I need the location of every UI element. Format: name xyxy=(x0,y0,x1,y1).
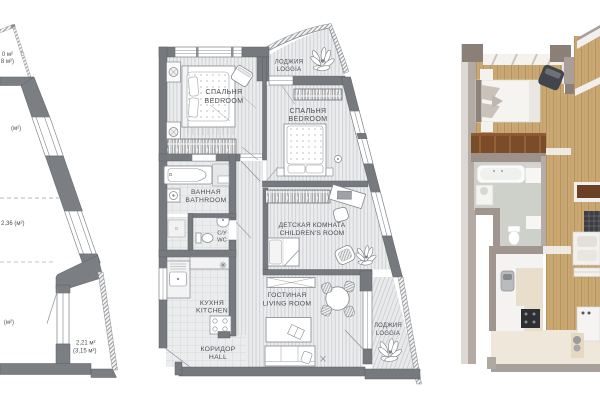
svg-text:(м²): (м²) xyxy=(4,320,14,326)
svg-text:LIVING ROOM: LIVING ROOM xyxy=(263,301,312,308)
svg-text:HALL: HALL xyxy=(209,354,227,361)
svg-text:2,36 (м²): 2,36 (м²) xyxy=(1,221,24,227)
svg-text:CHILDREN'S ROOM: CHILDREN'S ROOM xyxy=(280,230,345,237)
svg-text:С/У: С/У xyxy=(217,231,227,237)
svg-text:КОРИДОР: КОРИДОР xyxy=(200,346,235,353)
svg-text:СПАЛЬНЯ: СПАЛЬНЯ xyxy=(289,108,326,115)
svg-text:BEDROOM: BEDROOM xyxy=(289,116,328,123)
svg-text:ЛОДЖИЯ: ЛОДЖИЯ xyxy=(275,60,304,66)
svg-text:ГОСТИНАЯ: ГОСТИНАЯ xyxy=(267,292,306,299)
svg-text:(3,15 м²): (3,15 м²) xyxy=(73,349,96,355)
svg-text:ЛОДЖИЯ: ЛОДЖИЯ xyxy=(374,323,402,329)
svg-text:BATHROOM: BATHROOM xyxy=(185,197,226,204)
svg-text:ВАННАЯ: ВАННАЯ xyxy=(191,189,221,196)
svg-text:2,21 м²: 2,21 м² xyxy=(76,341,95,347)
svg-text:ДЕТСКАЯ КОМНАТА: ДЕТСКАЯ КОМНАТА xyxy=(279,222,346,229)
svg-text:LOGGIA: LOGGIA xyxy=(277,67,302,73)
svg-text:BEDROOM: BEDROOM xyxy=(205,98,244,105)
svg-text:0 м²: 0 м² xyxy=(2,52,13,58)
svg-text:LOGGIA: LOGGIA xyxy=(376,331,400,337)
svg-text:8 м²): 8 м²) xyxy=(1,59,14,65)
svg-text:(м²): (м²) xyxy=(11,126,21,132)
svg-text:СПАЛЬНЯ: СПАЛЬНЯ xyxy=(205,89,242,96)
svg-text:KITCHEN: KITCHEN xyxy=(196,308,228,315)
svg-text:WC: WC xyxy=(217,238,227,244)
svg-text:КУХНЯ: КУХНЯ xyxy=(200,300,224,307)
